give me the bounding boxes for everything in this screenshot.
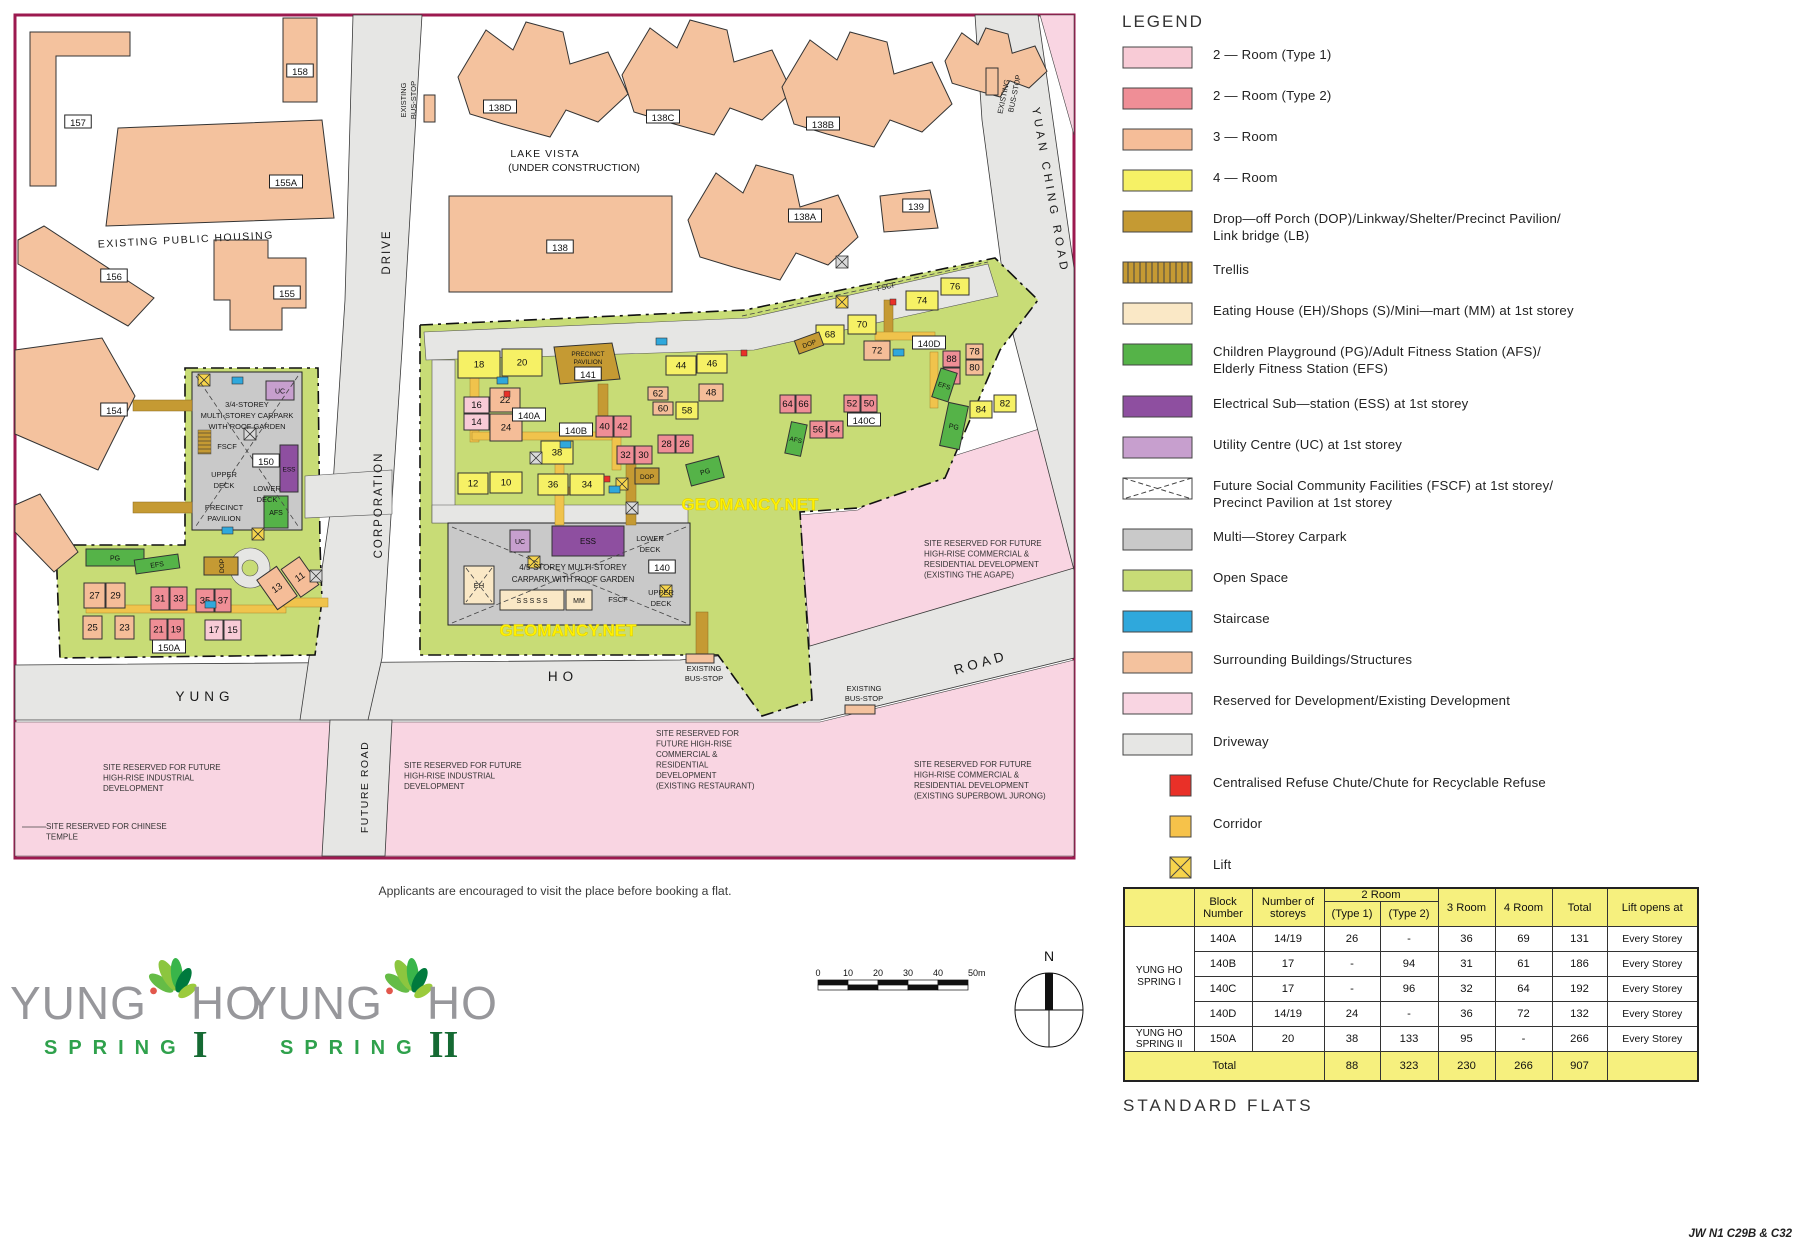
block-20-label: 20	[517, 358, 528, 369]
staircase-icon	[560, 441, 571, 448]
block-29-label: 29	[110, 591, 121, 602]
scale-bar-part: 50m	[968, 968, 986, 978]
bus-stop-bay	[686, 654, 714, 663]
block-14-label: 14	[471, 417, 482, 428]
plan-reference: JW N1 C29B & C32	[1620, 1228, 1792, 1240]
legend: LEGEND 2 — Room (Type 1)2 — Room (Type 2…	[1122, 12, 1782, 938]
logo2-word1: YUNG	[246, 980, 383, 1026]
block-16-label: 16	[471, 400, 482, 411]
site-reserved-superbowl: RESIDENTIAL DEVELOPMENT	[914, 781, 1029, 790]
pg-left-label: PG	[110, 556, 120, 563]
legend-swatch-rect-icon	[1122, 46, 1193, 70]
cell-2room-type2: 96	[1380, 977, 1438, 1002]
legend-item-2: 3 — Room	[1122, 128, 1782, 152]
legend-swatch-rect-icon	[1122, 733, 1193, 757]
table-row: YUNG HO SPRING II150A203813395-266Every …	[1124, 1027, 1698, 1052]
group-name: YUNG HO SPRING II	[1124, 1027, 1194, 1052]
block-31-label: 31	[155, 594, 166, 605]
logo-yung-ho-spring-1: YUNG HO SPRING I	[10, 930, 242, 1080]
block-54-label: 54	[830, 425, 841, 436]
refuse-chute-icon	[604, 476, 610, 482]
bldg-155A	[106, 120, 334, 226]
map-label: MULTI-STOREY CARPARK	[201, 411, 294, 420]
map-label: PRECINCT	[571, 351, 604, 358]
cell-total: 186	[1552, 952, 1607, 977]
cell-block: 150A	[1194, 1027, 1252, 1052]
block-number: 140C	[853, 416, 876, 427]
block-number: 139	[908, 202, 924, 213]
block-62-label: 62	[653, 389, 664, 400]
block-68-label: 68	[825, 330, 836, 341]
block-28-label: 28	[661, 439, 672, 450]
legend-item-10: Future Social Community Facilities (FSCF…	[1122, 477, 1782, 511]
map-label: CORPORATION	[373, 452, 385, 559]
block-74-label: 74	[917, 296, 928, 307]
legend-swatch	[1122, 569, 1193, 593]
logo2-numeral: II	[429, 1030, 459, 1060]
block-70-label: 70	[857, 320, 868, 331]
header-lift-opens-at: Lift opens at	[1607, 888, 1698, 927]
legend-swatch-rect-icon	[1122, 128, 1193, 152]
legend-swatch-trellis-icon	[1122, 261, 1193, 285]
legend-swatch-rect-icon	[1122, 569, 1193, 593]
legend-item-label: 4 — Room	[1213, 169, 1278, 186]
staircase-icon	[222, 527, 233, 534]
map-label: BUS-STOP	[845, 694, 883, 703]
site-reserved-agape: SITE RESERVED FOR FUTURE	[924, 539, 1042, 548]
map-label: FUTURE ROAD	[359, 741, 371, 833]
staircase-icon	[232, 377, 243, 384]
cell-storeys: 20	[1252, 1027, 1324, 1052]
table-total-row: Total88323230266907	[1124, 1052, 1698, 1082]
map-label: PRECINCT	[205, 503, 244, 512]
block-48-label: 48	[706, 388, 717, 399]
block-number: 140A	[518, 411, 541, 422]
block-24-label: 24	[501, 423, 512, 434]
north-compass-icon: N	[1003, 945, 1095, 1057]
block-58-label: 58	[682, 406, 693, 417]
legend-item-19: Lift	[1122, 856, 1782, 880]
legend-swatch	[1122, 692, 1193, 716]
block-number: 140D	[918, 339, 941, 350]
legend-swatch-rect-icon	[1122, 651, 1193, 675]
map-label: HO	[548, 669, 578, 684]
watermark: GEOMANCY.NET	[682, 495, 820, 514]
map-label: PAVILION	[573, 359, 602, 366]
dop-left-label: DOP	[219, 559, 226, 573]
legend-swatch	[1122, 528, 1193, 552]
cell-3room: 36	[1438, 1002, 1495, 1027]
map-label: FSCF	[608, 595, 628, 604]
bus-stop-bay	[986, 68, 998, 95]
legend-swatch-rect-icon	[1122, 87, 1193, 111]
compass-n-label: N	[1044, 948, 1054, 964]
legend-swatch	[1122, 856, 1193, 880]
legend-item-1: 2 — Room (Type 2)	[1122, 87, 1782, 111]
header-2-room: 2 Room	[1324, 888, 1438, 902]
header-3-room: 3 Room	[1438, 888, 1495, 927]
scale-bar-part: 20	[873, 968, 883, 978]
staircase-icon	[656, 338, 667, 345]
ess-left-label: ESS	[282, 467, 296, 474]
map-label: UPPER	[211, 470, 237, 479]
map-label: YUNG	[175, 689, 234, 704]
cell-storeys: 14/19	[1252, 927, 1324, 952]
cell-3room: 36	[1438, 927, 1495, 952]
legend-item-label: Drop—off Porch (DOP)/Linkway/Shelter/Pre…	[1213, 210, 1561, 244]
refuse-chute-icon	[890, 299, 896, 305]
legend-swatch	[1122, 46, 1193, 70]
legend-item-label: Corridor	[1213, 815, 1262, 832]
site-reserved-industrial-mid: HIGH-RISE INDUSTRIAL	[404, 772, 496, 781]
cell-3room: 95	[1438, 1027, 1495, 1052]
legend-item-label: 2 — Room (Type 2)	[1213, 87, 1331, 104]
map-label: EXISTING	[846, 684, 881, 693]
site-reserved-industrial-west: DEVELOPMENT	[103, 784, 164, 793]
map-label: DECK	[640, 545, 661, 554]
cell-block: 140D	[1194, 1002, 1252, 1027]
eating-house-label: EH	[474, 581, 484, 590]
block-number: 154	[106, 406, 122, 417]
block-78-label: 78	[969, 347, 980, 358]
legend-swatch	[1122, 261, 1193, 285]
table-row: YUNG HO SPRING I140A14/1926-3669131Every…	[1124, 927, 1698, 952]
header-empty	[1124, 888, 1194, 927]
block-80-label: 80	[969, 363, 980, 374]
refuse-chute-icon	[504, 391, 510, 397]
scale-bar-part	[818, 985, 848, 990]
cell-3room: 31	[1438, 952, 1495, 977]
legend-item-label: Eating House (EH)/Shops (S)/Mini—mart (M…	[1213, 302, 1574, 319]
legend-swatch-small-icon	[1122, 774, 1193, 798]
scale-bar-part	[878, 980, 908, 985]
legend-item-16: Driveway	[1122, 733, 1782, 757]
block-number: 138C	[652, 113, 675, 124]
total-3room: 230	[1438, 1052, 1495, 1082]
legend-item-label: Lift	[1213, 856, 1231, 873]
legend-swatch-rect-icon	[1122, 692, 1193, 716]
site-reserved-restaurant: COMMERCIAL &	[656, 750, 718, 759]
block-37-label: 37	[218, 596, 229, 607]
total-all: 907	[1552, 1052, 1607, 1082]
block-23-label: 23	[119, 623, 130, 634]
legend-item-label: Multi—Storey Carpark	[1213, 528, 1347, 545]
block-15-label: 15	[227, 625, 238, 636]
legend-swatch-rect-icon	[1122, 436, 1193, 460]
map-label: DRIVE	[381, 229, 393, 274]
block-88-label: 88	[946, 354, 957, 365]
site-reserved-superbowl: (EXISTING SUPERBOWL JURONG)	[914, 792, 1046, 801]
legend-swatch	[1122, 436, 1193, 460]
block-60-label: 60	[658, 404, 669, 415]
cell-4room: -	[1495, 1027, 1552, 1052]
scale-bar-part	[878, 985, 908, 990]
cell-total: 131	[1552, 927, 1607, 952]
driveway-central-west	[432, 360, 455, 523]
cell-total: 192	[1552, 977, 1607, 1002]
legend-title: LEGEND	[1122, 12, 1782, 32]
cell-4room: 69	[1495, 927, 1552, 952]
legend-item-8: Electrical Sub—station (ESS) at 1st stor…	[1122, 395, 1782, 419]
cell-2room-type1: -	[1324, 977, 1380, 1002]
staircase-icon	[205, 601, 216, 608]
site-reserved-superbowl: HIGH-RISE COMMERCIAL &	[914, 771, 1020, 780]
map-label: DECK	[651, 599, 672, 608]
site-reserved-restaurant: (EXISTING RESTAURANT)	[656, 782, 755, 791]
map-label: 3/4-STOREY	[225, 400, 269, 409]
legend-item-label: Reserved for Development/Existing Develo…	[1213, 692, 1510, 709]
map-label: LOWER	[253, 484, 281, 493]
scale-bar-part	[908, 980, 938, 985]
table-row: 140D14/1924-3672132Every Storey	[1124, 1002, 1698, 1027]
watermark: GEOMANCY.NET	[500, 621, 638, 640]
legend-item-label: 2 — Room (Type 1)	[1213, 46, 1331, 63]
map-label: LOWER	[636, 534, 664, 543]
legend-swatch	[1122, 774, 1193, 798]
block-number: 158	[292, 67, 308, 78]
site-reserved-chinese-temple: TEMPLE	[46, 833, 78, 842]
uc-left-label: UC	[275, 389, 285, 396]
block-number: 155	[279, 289, 295, 300]
legend-item-11: Multi—Storey Carpark	[1122, 528, 1782, 552]
leaf-icon	[376, 955, 434, 1024]
legend-swatch-rect-icon	[1122, 343, 1193, 367]
block-number: 150	[258, 457, 274, 468]
block-25-label: 25	[87, 623, 98, 634]
map-label: BUS-STOP	[685, 674, 723, 683]
scale-bar-part	[848, 980, 878, 985]
legend-item-label: Staircase	[1213, 610, 1270, 627]
legend-swatch	[1122, 302, 1193, 326]
site-reserved-industrial-mid: SITE RESERVED FOR FUTURE	[404, 761, 522, 770]
block-number: 138B	[812, 120, 834, 131]
legend-swatch-fscf-icon	[1122, 477, 1193, 501]
uc-central-label: UC	[515, 539, 525, 546]
bus-stop-bay	[845, 705, 875, 714]
staircase-icon	[497, 377, 508, 384]
map-caption: Applicants are encouraged to visit the p…	[255, 884, 855, 898]
legend-item-13: Staircase	[1122, 610, 1782, 634]
map-label: 4/5-STOREY MULTI-STOREY	[519, 563, 627, 572]
map-label: FSCF	[217, 442, 237, 451]
map-label: WITH ROOF GARDEN	[208, 422, 285, 431]
map-label: LAKE VISTA	[510, 148, 579, 160]
header-block-number: Block Number	[1194, 888, 1252, 927]
staircase-icon	[893, 349, 904, 356]
scale-bar: 01020304050m	[808, 966, 1008, 1000]
header-storeys: Number of storeys	[1252, 888, 1324, 927]
map-label: PAVILION	[207, 514, 240, 523]
bldg-158	[283, 18, 317, 102]
block-64-label: 64	[782, 399, 793, 410]
map-label: EXISTING	[686, 664, 721, 673]
cell-total: 132	[1552, 1002, 1607, 1027]
map-label: DECK	[214, 481, 235, 490]
site-reserved-agape: RESIDENTIAL DEVELOPMENT	[924, 560, 1039, 569]
legend-item-18: Corridor	[1122, 815, 1782, 839]
cell-storeys: 17	[1252, 977, 1324, 1002]
block-30-label: 30	[638, 450, 649, 461]
legend-item-5: Trellis	[1122, 261, 1782, 285]
cell-lift: Every Storey	[1607, 927, 1698, 952]
legend-item-12: Open Space	[1122, 569, 1782, 593]
flats-table: Block NumberNumber of storeys2 Room3 Roo…	[1123, 887, 1699, 1082]
site-reserved-restaurant: FUTURE HIGH-RISE	[656, 740, 732, 749]
legend-item-label: Open Space	[1213, 569, 1288, 586]
block-82-label: 82	[1000, 399, 1011, 410]
block-40-label: 40	[599, 422, 610, 433]
shops-label: S S S S S	[516, 598, 547, 605]
block-21-label: 21	[153, 625, 164, 636]
block-12-label: 12	[468, 479, 479, 490]
logo1-numeral: I	[193, 1030, 208, 1060]
block-66-label: 66	[798, 399, 809, 410]
block-number: 138D	[489, 103, 512, 114]
block-38-label: 38	[552, 448, 563, 459]
scale-bar-part	[818, 980, 848, 985]
cell-4room: 72	[1495, 1002, 1552, 1027]
cell-4room: 61	[1495, 952, 1552, 977]
cell-lift: Every Storey	[1607, 952, 1698, 977]
cell-lift: Every Storey	[1607, 1002, 1698, 1027]
legend-swatch-rect-icon	[1122, 302, 1193, 326]
site-reserved-industrial-mid: DEVELOPMENT	[404, 782, 465, 791]
site-reserved-chinese-temple: SITE RESERVED FOR CHINESE	[46, 822, 167, 831]
cell-block: 140A	[1194, 927, 1252, 952]
legend-item-0: 2 — Room (Type 1)	[1122, 46, 1782, 70]
scale-bar-part: 0	[815, 968, 820, 978]
scale-bar-part: 30	[903, 968, 913, 978]
cell-2room-type2: -	[1380, 927, 1438, 952]
legend-swatch-small-icon	[1122, 815, 1193, 839]
cell-2room-type1: -	[1324, 952, 1380, 977]
flats-table-title: STANDARD FLATS	[1123, 1096, 1314, 1116]
block-number: 138	[552, 243, 568, 254]
cell-storeys: 17	[1252, 952, 1324, 977]
total-2room-type2: 323	[1380, 1052, 1438, 1082]
scale-bar-part	[848, 985, 878, 990]
linkway	[696, 612, 708, 660]
legend-swatch-smallx-icon	[1122, 856, 1193, 880]
legend-swatch-rect-icon	[1122, 395, 1193, 419]
bus-stop-bay	[424, 95, 435, 122]
total-lift	[1607, 1052, 1698, 1082]
cell-2room-type2: 133	[1380, 1027, 1438, 1052]
legend-swatch	[1122, 477, 1193, 501]
future-road	[322, 720, 392, 856]
block-number: 156	[106, 272, 122, 283]
header-total: Total	[1552, 888, 1607, 927]
legend-item-label: 3 — Room	[1213, 128, 1278, 145]
logo-yung-ho-spring-2: YUNG HO SPRING II	[246, 930, 478, 1080]
legend-item-6: Eating House (EH)/Shops (S)/Mini—mart (M…	[1122, 302, 1782, 326]
linkway	[133, 502, 192, 513]
legend-item-label: Driveway	[1213, 733, 1269, 750]
block-number: 141	[580, 370, 596, 381]
cell-2room-type2: 94	[1380, 952, 1438, 977]
block-number: 140	[654, 563, 670, 574]
legend-item-label: Centralised Refuse Chute/Chute for Recyc…	[1213, 774, 1546, 791]
header-4-room: 4 Room	[1495, 888, 1552, 927]
site-reserved-restaurant: DEVELOPMENT	[656, 771, 717, 780]
block-17-label: 17	[209, 625, 220, 636]
logo2-spring: SPRING	[280, 1037, 423, 1060]
refuse-chute-icon	[741, 350, 747, 356]
legend-item-14: Surrounding Buildings/Structures	[1122, 651, 1782, 675]
legend-item-7: Children Playground (PG)/Adult Fitness S…	[1122, 343, 1782, 377]
logo2-word2: HO	[427, 980, 498, 1026]
table-row: 140C17-963264192Every Storey	[1124, 977, 1698, 1002]
legend-item-4: Drop—off Porch (DOP)/Linkway/Shelter/Pre…	[1122, 210, 1782, 244]
cell-storeys: 14/19	[1252, 1002, 1324, 1027]
total-label: Total	[1124, 1052, 1324, 1082]
header-type-1: (Type 1)	[1324, 902, 1380, 927]
block-56-label: 56	[813, 425, 824, 436]
cell-block: 140C	[1194, 977, 1252, 1002]
site-reserved-agape: (EXISTING THE AGAPE)	[924, 571, 1014, 580]
cell-lift: Every Storey	[1607, 977, 1698, 1002]
block-76-label: 76	[950, 282, 961, 293]
map-label: CARPARK WITH ROOF GARDEN	[512, 575, 635, 584]
legend-item-17: Centralised Refuse Chute/Chute for Recyc…	[1122, 774, 1782, 798]
group-name: YUNG HO SPRING I	[1124, 927, 1194, 1027]
block-number: 155A	[275, 178, 298, 189]
site-reserved-superbowl: SITE RESERVED FOR FUTURE	[914, 760, 1032, 769]
mini-mart-label: MM	[573, 598, 585, 605]
table-header-row: Block NumberNumber of storeys2 Room3 Roo…	[1124, 888, 1698, 902]
legend-swatch	[1122, 733, 1193, 757]
legend-item-label: Utility Centre (UC) at 1st storey	[1213, 436, 1402, 453]
block-50-label: 50	[864, 399, 875, 410]
block-42-label: 42	[617, 422, 628, 433]
map-label: EXISTING	[399, 82, 408, 117]
block-46-label: 46	[707, 359, 718, 370]
map-label: (UNDER CONSTRUCTION)	[508, 162, 640, 174]
cell-total: 266	[1552, 1027, 1607, 1052]
site-reserved-agape: HIGH-RISE COMMERCIAL &	[924, 550, 1030, 559]
scale-bar-part	[908, 985, 938, 990]
cell-2room-type2: -	[1380, 1002, 1438, 1027]
legend-swatch-rect-icon	[1122, 528, 1193, 552]
legend-swatch	[1122, 395, 1193, 419]
legend-item-3: 4 — Room	[1122, 169, 1782, 193]
linkway	[133, 400, 192, 411]
block-number: 138A	[794, 212, 817, 223]
driveway-roundabout-core	[242, 560, 258, 576]
logo1-word1: YUNG	[10, 980, 147, 1026]
map-label: UPPER	[648, 588, 674, 597]
page: { "legend": { "title": "LEGEND", "items"…	[0, 0, 1800, 1250]
site-reserved-restaurant: RESIDENTIAL	[656, 761, 709, 770]
scale-bar-part: 10	[843, 968, 853, 978]
legend-swatch	[1122, 128, 1193, 152]
block-18-label: 18	[474, 360, 485, 371]
block-number: 140B	[565, 426, 587, 437]
legend-swatch	[1122, 87, 1193, 111]
cell-2room-type1: 38	[1324, 1027, 1380, 1052]
legend-item-label: Trellis	[1213, 261, 1249, 278]
block-19-label: 19	[171, 625, 182, 636]
legend-item-15: Reserved for Development/Existing Develo…	[1122, 692, 1782, 716]
cell-3room: 32	[1438, 977, 1495, 1002]
cell-2room-type1: 24	[1324, 1002, 1380, 1027]
cell-lift: Every Storey	[1607, 1027, 1698, 1052]
legend-item-label: Surrounding Buildings/Structures	[1213, 651, 1412, 668]
block-number: 150A	[158, 643, 181, 654]
header-type-2: (Type 2)	[1380, 902, 1438, 927]
legend-swatch-rect-icon	[1122, 610, 1193, 634]
total-2room-type1: 88	[1324, 1052, 1380, 1082]
